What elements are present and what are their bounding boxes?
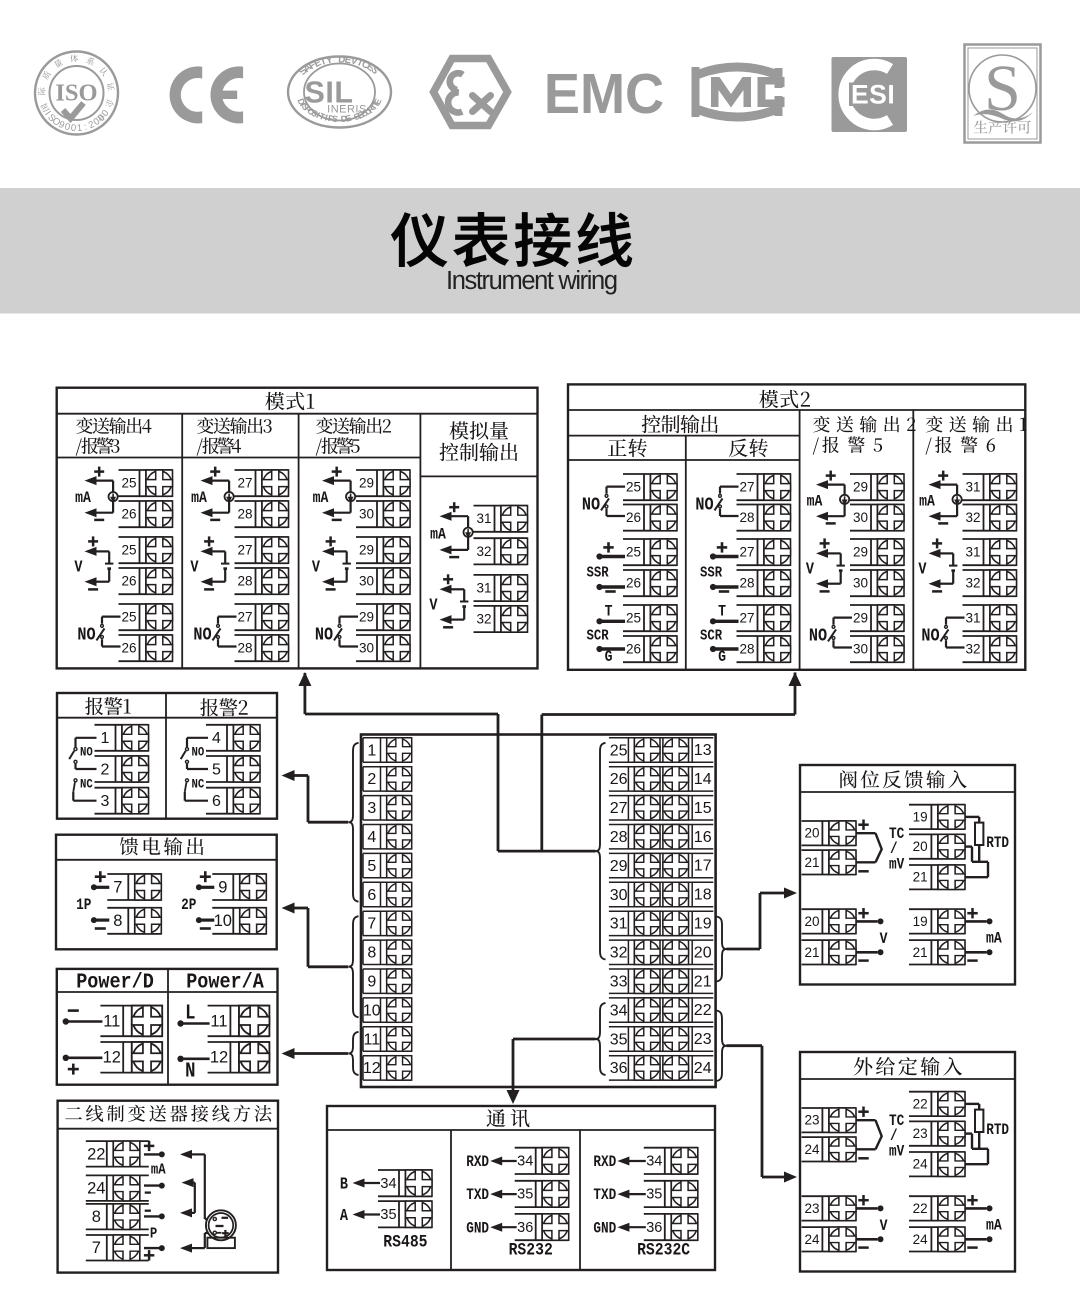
svg-text:27: 27 [237, 543, 252, 558]
svg-text:mV: mV [889, 1143, 905, 1160]
svg-text:12: 12 [363, 1060, 381, 1077]
svg-text:24: 24 [694, 1060, 712, 1077]
svg-text:31: 31 [965, 611, 980, 626]
svg-text:mA: mA [807, 494, 823, 511]
svg-text:22: 22 [913, 1201, 928, 1216]
svg-text:RTD: RTD [986, 1122, 1009, 1139]
svg-text:21: 21 [913, 945, 928, 960]
svg-text:B: B [340, 1174, 348, 1194]
svg-text:8: 8 [367, 945, 376, 962]
svg-text:12: 12 [103, 1049, 121, 1067]
svg-text:mA: mA [919, 494, 935, 511]
svg-text:26: 26 [626, 510, 641, 525]
svg-text:25: 25 [626, 611, 641, 626]
svg-text:NO: NO [809, 626, 827, 647]
svg-text:7: 7 [367, 916, 376, 933]
svg-text:NO: NO [80, 745, 93, 760]
svg-text:36: 36 [610, 1060, 628, 1077]
svg-text:mA: mA [75, 490, 91, 507]
svg-text:4: 4 [212, 730, 221, 747]
svg-text:3: 3 [101, 793, 110, 810]
svg-text:32: 32 [610, 945, 628, 962]
svg-text:V: V [190, 557, 199, 577]
svg-text:mA: mA [313, 490, 329, 507]
svg-text:2: 2 [367, 771, 376, 788]
svg-text:5: 5 [367, 858, 376, 875]
svg-text:35: 35 [380, 1207, 396, 1223]
svg-text:mA: mA [151, 1163, 166, 1179]
svg-text:16: 16 [694, 829, 712, 846]
svg-text:1: 1 [101, 730, 110, 747]
svg-text:TXD: TXD [593, 1187, 616, 1204]
svg-text:14: 14 [694, 771, 712, 788]
svg-text:21: 21 [804, 855, 819, 870]
svg-text:24: 24 [913, 1157, 929, 1172]
svg-text:9: 9 [218, 878, 227, 896]
svg-text:11: 11 [103, 1012, 120, 1030]
svg-text:21: 21 [694, 973, 712, 990]
svg-text:10: 10 [214, 912, 232, 930]
svg-text:36: 36 [646, 1220, 662, 1236]
svg-text:ESI: ESI [851, 80, 895, 110]
svg-text:NC: NC [192, 777, 205, 792]
svg-text:29: 29 [359, 610, 374, 625]
svg-text:L: L [185, 1001, 195, 1025]
svg-text:NO: NO [695, 495, 713, 516]
svg-text:mA: mA [191, 490, 207, 507]
svg-text:29: 29 [853, 480, 868, 495]
svg-text:27: 27 [739, 545, 754, 560]
svg-text:35: 35 [517, 1187, 533, 1203]
svg-text:20: 20 [804, 914, 819, 929]
svg-text:2P: 2P [181, 897, 196, 914]
svg-text:T: T [605, 603, 613, 620]
svg-text:13: 13 [694, 742, 712, 759]
svg-text:27: 27 [237, 476, 252, 491]
svg-text:25: 25 [121, 476, 136, 491]
svg-text:RS232C: RS232C [637, 1239, 690, 1260]
svg-text:31: 31 [965, 545, 980, 560]
svg-text:23: 23 [913, 1126, 928, 1141]
svg-text:22: 22 [87, 1145, 105, 1163]
svg-text:30: 30 [359, 641, 374, 656]
svg-text:28: 28 [237, 507, 252, 522]
svg-text:28: 28 [739, 642, 754, 657]
svg-text:Power/A: Power/A [186, 970, 264, 993]
svg-text:29: 29 [853, 545, 868, 560]
svg-text:V: V [918, 559, 927, 579]
svg-text:24: 24 [87, 1180, 105, 1198]
svg-text:SSR: SSR [587, 566, 610, 582]
svg-text:1: 1 [76, 123, 82, 134]
svg-text:SCR: SCR [700, 629, 723, 645]
svg-text:4: 4 [367, 829, 376, 846]
svg-text:25: 25 [121, 610, 136, 625]
svg-text:N: N [185, 1059, 195, 1083]
svg-text:22: 22 [913, 1096, 928, 1111]
svg-text:35: 35 [610, 1031, 628, 1048]
svg-text:V: V [74, 557, 83, 577]
svg-text:32: 32 [965, 642, 980, 657]
svg-text:3: 3 [367, 800, 376, 817]
svg-text:V: V [429, 595, 438, 615]
svg-text:34: 34 [610, 1002, 628, 1019]
svg-text:23: 23 [694, 1031, 712, 1048]
svg-text:P: P [150, 1227, 157, 1243]
svg-text:GND: GND [593, 1220, 616, 1237]
svg-text:26: 26 [626, 576, 641, 591]
svg-text:25: 25 [610, 742, 628, 759]
svg-text:30: 30 [853, 642, 868, 657]
svg-text:1: 1 [367, 742, 376, 759]
svg-text:24: 24 [804, 1142, 820, 1157]
svg-text:26: 26 [626, 642, 641, 657]
svg-text:26: 26 [121, 507, 136, 522]
svg-text:2: 2 [101, 761, 110, 778]
svg-text:26: 26 [121, 641, 136, 656]
svg-text:mA: mA [986, 1218, 1002, 1235]
svg-text:17: 17 [694, 858, 712, 875]
svg-text:33: 33 [610, 974, 628, 991]
svg-text:A: A [340, 1206, 349, 1226]
svg-text:27: 27 [237, 610, 252, 625]
svg-text:35: 35 [646, 1187, 662, 1203]
svg-text:31: 31 [476, 581, 491, 596]
svg-text:mA: mA [430, 526, 446, 543]
svg-text:31: 31 [965, 480, 980, 495]
svg-text:30: 30 [359, 574, 374, 589]
svg-text:NO: NO [193, 625, 211, 646]
svg-text:6: 6 [367, 887, 376, 904]
svg-text:RS485: RS485 [383, 1231, 427, 1252]
svg-text:29: 29 [359, 543, 374, 558]
svg-text:34: 34 [646, 1154, 662, 1170]
svg-text:22: 22 [694, 1002, 712, 1019]
svg-text:NO: NO [192, 745, 205, 760]
svg-text:26: 26 [121, 574, 136, 589]
svg-text:25: 25 [121, 543, 136, 558]
svg-text:24: 24 [804, 1232, 820, 1247]
svg-text:23: 23 [804, 1201, 819, 1216]
svg-text:11: 11 [363, 1031, 380, 1048]
svg-text:SSR: SSR [700, 566, 723, 582]
svg-text:19: 19 [913, 914, 928, 929]
svg-text:RTD: RTD [986, 835, 1009, 852]
svg-text:G: G [605, 649, 613, 666]
svg-text:S: S [332, 114, 339, 125]
svg-text:25: 25 [626, 545, 641, 560]
svg-text:20: 20 [694, 944, 712, 961]
svg-text:27: 27 [739, 611, 754, 626]
svg-text:mV: mV [889, 856, 905, 873]
svg-text:30: 30 [359, 507, 374, 522]
svg-text:20: 20 [913, 839, 928, 854]
svg-text:1P: 1P [76, 897, 91, 914]
svg-text:21: 21 [804, 945, 819, 960]
svg-text:29: 29 [610, 858, 628, 875]
svg-text:NO: NO [77, 625, 95, 646]
svg-text:Instrument wiring: Instrument wiring [446, 267, 618, 295]
svg-text:RXD: RXD [466, 1154, 489, 1171]
svg-text:30: 30 [853, 510, 868, 525]
svg-text:36: 36 [517, 1220, 533, 1236]
svg-text:RS232: RS232 [509, 1239, 553, 1260]
svg-text:20: 20 [804, 826, 819, 841]
svg-text:29: 29 [853, 611, 868, 626]
svg-text:NO: NO [582, 495, 600, 516]
svg-text:32: 32 [965, 510, 980, 525]
svg-text:32: 32 [476, 612, 491, 627]
svg-text:NC: NC [80, 777, 93, 792]
svg-text:10: 10 [363, 1002, 381, 1019]
svg-text:V: V [880, 1218, 888, 1235]
svg-text:24: 24 [913, 1232, 929, 1247]
svg-text:32: 32 [965, 576, 980, 591]
svg-text:T: T [718, 603, 726, 620]
svg-text:EMC: EMC [544, 62, 664, 126]
svg-text:29: 29 [359, 476, 374, 491]
svg-text:V: V [880, 931, 888, 948]
svg-text:30: 30 [853, 576, 868, 591]
svg-text:8: 8 [92, 1208, 101, 1226]
svg-text:GND: GND [466, 1220, 489, 1237]
svg-text:19: 19 [694, 916, 712, 933]
svg-text:Power/D: Power/D [76, 970, 154, 993]
svg-text:9: 9 [367, 974, 376, 991]
svg-text:28: 28 [237, 574, 252, 589]
svg-text:ISO: ISO [55, 80, 97, 107]
svg-text:TXD: TXD [466, 1187, 489, 1204]
svg-text:V: V [312, 557, 321, 577]
svg-text:27: 27 [739, 480, 754, 495]
svg-text:28: 28 [739, 510, 754, 525]
svg-text:23: 23 [804, 1113, 819, 1128]
svg-text:26: 26 [610, 771, 628, 788]
svg-text:31: 31 [610, 916, 628, 933]
svg-text:RXD: RXD [593, 1154, 616, 1171]
svg-text:NO: NO [315, 625, 333, 646]
svg-text:12: 12 [210, 1049, 228, 1067]
svg-text:NO: NO [921, 626, 939, 647]
svg-text:34: 34 [380, 1176, 396, 1192]
svg-text:6: 6 [212, 793, 221, 810]
svg-text:5: 5 [212, 761, 221, 778]
svg-text:19: 19 [913, 809, 928, 824]
svg-text:SCR: SCR [587, 629, 610, 645]
svg-text:34: 34 [517, 1154, 533, 1170]
svg-text:G: G [718, 649, 726, 666]
svg-text:27: 27 [610, 800, 628, 817]
svg-text:8: 8 [113, 912, 122, 930]
svg-text:7: 7 [92, 1239, 101, 1257]
svg-text:28: 28 [610, 829, 628, 846]
svg-text:28: 28 [237, 641, 252, 656]
svg-text:11: 11 [210, 1012, 227, 1030]
svg-text:30: 30 [610, 887, 628, 904]
svg-text:21: 21 [913, 870, 928, 885]
svg-text:15: 15 [694, 800, 712, 817]
svg-text:31: 31 [476, 511, 491, 526]
svg-text:25: 25 [626, 480, 641, 495]
svg-text:mA: mA [986, 931, 1002, 948]
svg-text:7: 7 [113, 878, 122, 896]
svg-text:28: 28 [739, 576, 754, 591]
svg-text:32: 32 [476, 544, 491, 559]
svg-text:18: 18 [694, 887, 712, 904]
svg-text:V: V [806, 559, 815, 579]
